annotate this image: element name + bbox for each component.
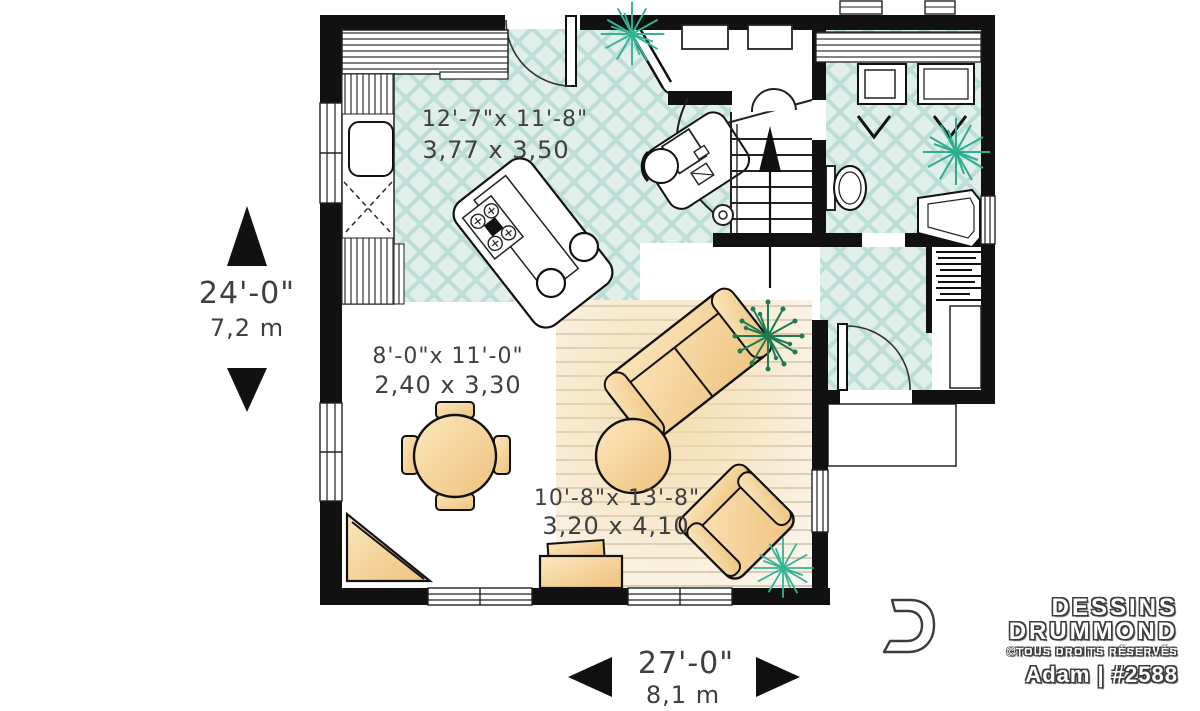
living-label-metric: 3,20 x 4,10	[542, 512, 689, 540]
dryer	[918, 64, 974, 104]
branding-block: DESSINS DRUMMOND ©TOUS DROITS RÉSERVÉS A…	[878, 596, 1178, 688]
window	[981, 196, 995, 244]
window	[840, 1, 882, 14]
dining-label-imperial: 8'-0"x 11'-0"	[372, 344, 523, 369]
plan-model-number: Adam | #2588	[878, 662, 1178, 688]
bar-stool	[537, 269, 565, 297]
entry-floor	[820, 247, 932, 390]
studio-name-line1: DESSINS	[1007, 596, 1178, 620]
window	[748, 25, 792, 49]
window	[628, 588, 732, 605]
bar-stool	[570, 233, 598, 261]
kitchen-sink	[349, 122, 393, 176]
washer	[858, 64, 906, 104]
width-metric: 8,1 m	[646, 681, 720, 709]
up-arrow-icon	[759, 126, 781, 288]
window	[320, 403, 342, 501]
drummond-d-logo-icon	[878, 596, 936, 656]
window	[925, 1, 955, 14]
arrow-down-icon	[227, 368, 267, 412]
floor-plan-page: 12'-7"x 11'-8" 3,77 x 3,50 8'-0"x 11'-0"…	[0, 0, 1200, 711]
depth-dimension: 24'-0" 7,2 m	[199, 206, 295, 412]
rights-reserved: ©TOUS DROITS RÉSERVÉS	[1007, 647, 1178, 658]
dining-table	[414, 415, 496, 497]
bathroom-counter	[816, 32, 981, 62]
toilet	[826, 166, 866, 210]
arrow-left-icon	[568, 657, 612, 697]
window	[428, 588, 532, 605]
window	[682, 25, 728, 49]
window	[812, 470, 828, 532]
depth-metric: 7,2 m	[210, 314, 284, 342]
window	[320, 103, 342, 203]
porch	[828, 404, 956, 466]
depth-imperial: 24'-0"	[199, 276, 295, 311]
desk-chair	[642, 149, 678, 183]
dining-set	[402, 402, 510, 510]
arrow-right-icon	[756, 657, 800, 697]
corner-unit	[347, 514, 430, 581]
arrow-up-icon	[227, 206, 267, 266]
dining-label-metric: 2,40 x 3,30	[374, 371, 521, 399]
width-imperial: 27'-0"	[638, 646, 734, 681]
width-dimension: 27'-0" 8,1 m	[568, 646, 800, 709]
ottoman	[596, 419, 670, 493]
studio-name-line2: DRUMMOND	[1007, 620, 1178, 644]
closet-shelf	[950, 306, 981, 388]
living-label-imperial: 10'-8"x 13'-8"	[534, 486, 700, 511]
kitchen-label-metric: 3,77 x 3,50	[422, 136, 569, 164]
kitchen-label-imperial: 12'-7"x 11'-8"	[422, 107, 588, 132]
